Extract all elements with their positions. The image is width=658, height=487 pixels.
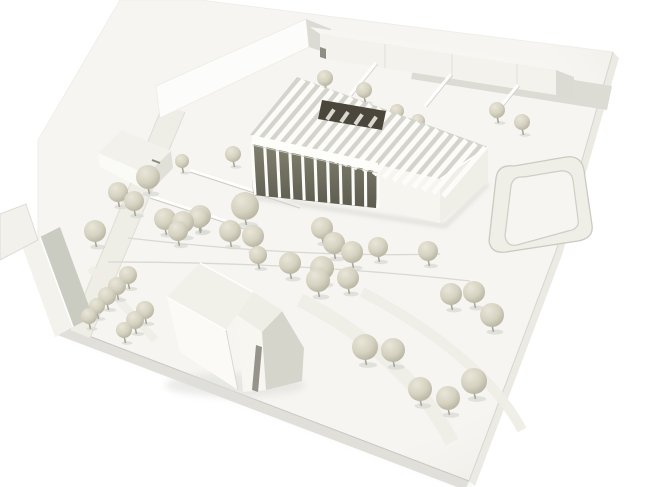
tree-shadow [230, 165, 241, 169]
colonnade-column [290, 150, 292, 199]
tree-canopy [249, 246, 267, 264]
tree-shadow [180, 171, 190, 174]
tree-canopy [356, 82, 372, 98]
tree-canopy [408, 377, 432, 401]
tree-shadow [174, 244, 188, 248]
tree-shadow [143, 191, 160, 196]
tree-canopy [84, 220, 106, 242]
tree-canopy [337, 267, 359, 289]
tree-shadow [446, 308, 461, 313]
tree-shadow [285, 277, 300, 282]
tree-shadow [388, 364, 405, 369]
tree-canopy [368, 237, 388, 257]
tree-canopy [418, 241, 438, 261]
colonnade-column [340, 161, 341, 204]
tree-canopy [440, 283, 462, 305]
tree-canopy [168, 221, 188, 241]
tree-shadow [104, 308, 117, 312]
tree-shadow [359, 362, 377, 368]
tree-shadow [443, 412, 460, 417]
tree-canopy [436, 386, 460, 410]
tree-shadow [130, 214, 144, 218]
tree-shadow [415, 403, 432, 408]
tree-canopy [306, 268, 330, 292]
tree-shadow [374, 260, 388, 264]
tree-shadow [225, 245, 240, 250]
tree-shadow [468, 396, 486, 402]
tree-canopy [124, 191, 144, 211]
tree-shadow [132, 332, 145, 336]
tree-canopy [175, 154, 189, 168]
tree-canopy [461, 368, 487, 394]
tree-shadow [519, 133, 530, 137]
tree-shadow [313, 294, 330, 299]
tree-canopy [352, 334, 378, 360]
tree-canopy [514, 114, 530, 130]
tree-shadow [487, 329, 504, 334]
tree-canopy [480, 303, 504, 327]
colonnade-column [353, 164, 354, 206]
architectural-model-photo [0, 0, 658, 487]
tree-canopy [116, 322, 132, 338]
tree-canopy [225, 146, 241, 162]
tree-canopy [136, 165, 160, 189]
colonnade-column [302, 153, 304, 200]
tree-shadow [343, 292, 358, 297]
screenshot-root [0, 0, 658, 487]
tree-shadow [255, 267, 268, 271]
tree-shadow [424, 264, 438, 268]
tree-shadow [195, 231, 209, 235]
rooftop-vent [320, 47, 326, 59]
tree-canopy [279, 252, 301, 274]
tree-shadow [86, 327, 97, 331]
tree-canopy [231, 192, 259, 220]
tree-canopy [489, 102, 505, 118]
tree-shadow [494, 121, 505, 125]
tree-canopy [242, 225, 264, 247]
colonnade-column [315, 156, 317, 202]
tree-shadow [90, 245, 105, 250]
tree-canopy [81, 308, 97, 324]
tree-canopy [341, 241, 363, 263]
tree-canopy [463, 281, 485, 303]
tree-canopy [219, 220, 241, 242]
colonnade-column [328, 158, 329, 203]
tree-shadow [125, 287, 138, 291]
tree-canopy [317, 70, 333, 86]
tree-canopy [381, 338, 405, 362]
tree-shadow [121, 341, 132, 345]
